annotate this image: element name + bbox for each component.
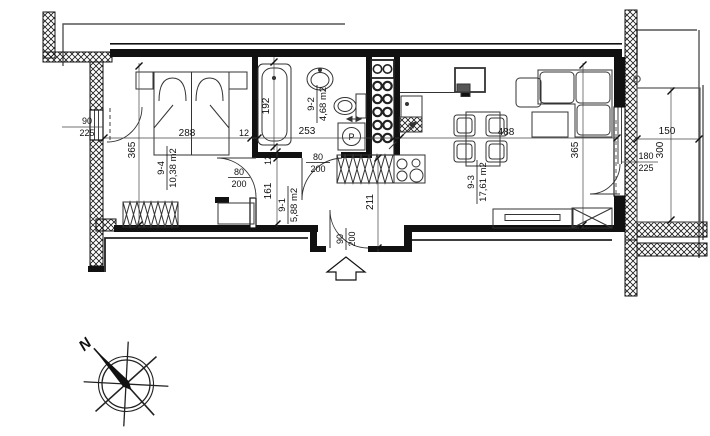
kitchen-counter bbox=[337, 155, 394, 183]
cooktop bbox=[394, 155, 425, 183]
balcony-window-door bbox=[590, 107, 625, 196]
svg-text:9-1: 9-1 bbox=[277, 198, 288, 212]
wardrobe bbox=[123, 202, 178, 227]
dim-bathroom-width: 253 bbox=[299, 126, 316, 137]
toilet bbox=[334, 94, 366, 118]
dining-set bbox=[454, 112, 507, 166]
pillow-left bbox=[159, 78, 186, 101]
svg-text:9-4: 9-4 bbox=[156, 161, 167, 175]
corner-sofa bbox=[516, 70, 612, 137]
svg-text:80: 80 bbox=[234, 167, 244, 177]
living-room-furniture bbox=[454, 68, 612, 228]
dim-living-width: 488 bbox=[498, 127, 515, 138]
dim-bathtub-length: 192 bbox=[261, 97, 272, 114]
compass-rose: N bbox=[52, 308, 185, 436]
washing-machine-label: P bbox=[348, 132, 354, 142]
washbasin bbox=[307, 68, 333, 90]
dim-balcony-depth: 300 bbox=[655, 141, 666, 158]
dim-hall-depth: 161 bbox=[263, 182, 274, 199]
floor-plan-page: P bbox=[0, 0, 710, 436]
pillow-right bbox=[196, 78, 223, 101]
dim-wall-a: 12 bbox=[239, 128, 249, 138]
svg-text:200: 200 bbox=[310, 164, 325, 174]
dim-bedroom-depth: 365 bbox=[127, 141, 138, 158]
entrance-door-size: 90 200 bbox=[335, 228, 357, 250]
nightstand-left bbox=[136, 72, 153, 89]
floor-plan-drawing: P bbox=[0, 0, 710, 436]
svg-text:200: 200 bbox=[347, 231, 357, 246]
entrance-arrow bbox=[327, 257, 365, 280]
dim-hall-width: 211 bbox=[365, 194, 376, 210]
dim-wall-b: 12 bbox=[263, 155, 273, 165]
bedroom-window bbox=[90, 107, 142, 142]
svg-text:180: 180 bbox=[638, 151, 653, 161]
svg-text:5,88 m2: 5,88 m2 bbox=[289, 188, 300, 222]
coffee-table bbox=[532, 112, 568, 137]
svg-text:4,68 m2: 4,68 m2 bbox=[318, 87, 329, 121]
vent-arrow bbox=[347, 117, 361, 122]
svg-text:225: 225 bbox=[638, 163, 653, 173]
room-label-living: 9-3 17,61 m2 bbox=[466, 160, 489, 204]
room-label-bedroom: 9-4 10,38 m2 bbox=[156, 146, 179, 190]
bathroom-door-size: 80 200 bbox=[306, 152, 330, 174]
svg-text:90: 90 bbox=[82, 116, 92, 126]
closet bbox=[218, 203, 254, 224]
room-label-bathroom: 9-2 4,68 m2 bbox=[306, 85, 329, 123]
svg-text:17,61 m2: 17,61 m2 bbox=[478, 162, 489, 202]
svg-text:90: 90 bbox=[335, 234, 345, 244]
svg-text:9-2: 9-2 bbox=[306, 97, 317, 111]
dim-balcony-width: 150 bbox=[659, 126, 676, 137]
compass-north-label: N bbox=[76, 334, 96, 355]
bedroom-door-size: 80 200 bbox=[228, 167, 250, 189]
tv-cabinet bbox=[455, 68, 485, 97]
svg-text:80: 80 bbox=[313, 152, 323, 162]
nightstand-right bbox=[229, 72, 247, 89]
dim-living-depth: 365 bbox=[570, 141, 581, 158]
room-label-hall: 9-1 5,88 m2 bbox=[277, 186, 300, 224]
dim-bedroom-width: 288 bbox=[179, 128, 196, 139]
bedroom-furniture bbox=[123, 72, 254, 227]
svg-text:10,38 m2: 10,38 m2 bbox=[168, 148, 179, 188]
fridge bbox=[401, 96, 422, 117]
balcony bbox=[634, 76, 700, 222]
svg-text:225: 225 bbox=[79, 128, 94, 138]
svg-text:9-3: 9-3 bbox=[466, 175, 477, 189]
svg-text:200: 200 bbox=[231, 179, 246, 189]
